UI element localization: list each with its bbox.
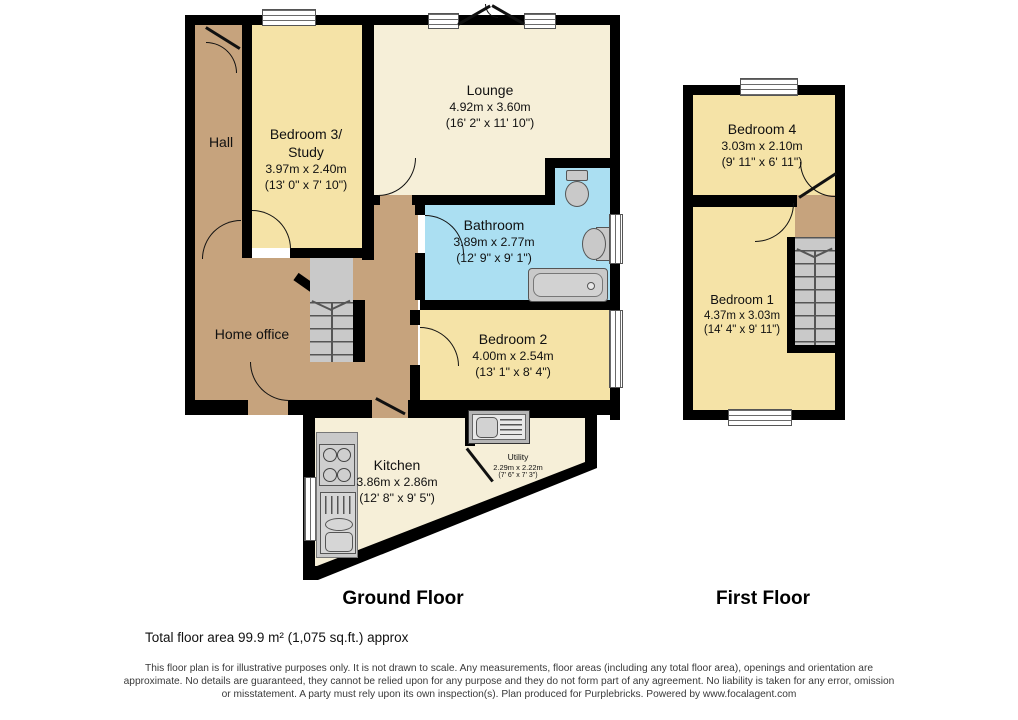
- window-bedroom4: [740, 78, 798, 96]
- utility-label: Utility 2.29m x 2.22m (7' 6" x 7' 3"): [493, 452, 543, 481]
- wall: [290, 248, 362, 258]
- room-dims-metric: 4.92m x 3.60m: [446, 100, 534, 116]
- window-bedroom1: [728, 409, 792, 426]
- window-bathroom: [609, 214, 623, 264]
- wall: [835, 85, 845, 420]
- room-name: Bedroom 3/: [265, 126, 347, 144]
- room-dims-imperial: (14' 4" x 9' 11"): [704, 323, 780, 338]
- bathroom-label: Bathroom 3.89m x 2.77m (12' 9" x 9' 1"): [453, 217, 534, 266]
- window-lounge-right: [524, 13, 556, 29]
- bedroom1-label: Bedroom 1 4.37m x 3.03m (14' 4" x 9' 11"…: [704, 292, 780, 338]
- floorplan-image: Hall Bedroom 3/ Study 3.97m x 2.40m (13'…: [0, 0, 1018, 720]
- hob-icon: [319, 444, 355, 486]
- window-bedroom2: [609, 310, 623, 388]
- room-dims-imperial: (16' 2" x 11' 10"): [446, 116, 534, 132]
- toilet-icon: [565, 170, 589, 208]
- wall: [374, 195, 380, 205]
- room-dims-imperial: (12' 9" x 9' 1"): [453, 251, 534, 267]
- room-dims-metric: 3.97m x 2.40m: [265, 162, 347, 178]
- wall: [362, 15, 374, 260]
- disclaimer-line1: This floor plan is for illustrative purp…: [0, 663, 1018, 674]
- wall: [185, 15, 195, 415]
- room-name-line2: Study: [265, 144, 347, 162]
- room-name: Bedroom 2: [472, 331, 553, 349]
- stairs-first-centerline: [814, 250, 816, 345]
- room-name: Utility: [493, 452, 543, 463]
- wall: [683, 85, 693, 420]
- wall: [410, 310, 420, 325]
- bathtub-icon: [528, 268, 608, 302]
- room-dims-metric: 4.00m x 2.54m: [472, 349, 553, 365]
- room-name: Home office: [215, 326, 289, 344]
- room-dims-imperial: (12' 8" x 9' 5"): [356, 491, 437, 507]
- utility-sink-icon: [468, 410, 530, 444]
- disclaimer-line3: or misstatement. A party must rely upon …: [0, 689, 1018, 700]
- room-dims-imperial: (7' 6" x 7' 3"): [493, 472, 543, 481]
- kitchen-sink-icon: [320, 492, 356, 554]
- room-name: Lounge: [446, 82, 534, 100]
- kitchen-doorway: [372, 400, 408, 418]
- wall: [545, 158, 555, 205]
- room-name: Bedroom 4: [721, 121, 802, 139]
- wall: [185, 400, 248, 415]
- room-dims-metric: 3.03m x 2.10m: [721, 139, 802, 155]
- room-dims-metric: 2.29m x 2.22m: [493, 463, 543, 473]
- wall: [410, 365, 420, 400]
- room-name: Bedroom 1: [704, 292, 780, 309]
- window-lounge-left: [428, 13, 459, 29]
- room-dims-metric: 3.89m x 2.77m: [453, 235, 534, 251]
- stairs-ground-landing: [310, 258, 353, 302]
- wall: [412, 195, 552, 205]
- bedroom2-label: Bedroom 2 4.00m x 2.54m (13' 1" x 8' 4"): [472, 331, 553, 380]
- wall: [415, 205, 425, 215]
- room-dims-imperial: (13' 0" x 7' 10"): [265, 178, 347, 194]
- wall: [787, 237, 795, 348]
- wall: [242, 15, 252, 258]
- room-name: Kitchen: [356, 457, 437, 475]
- bedroom3-label: Bedroom 3/ Study 3.97m x 2.40m (13' 0" x…: [265, 126, 347, 193]
- lounge-label: Lounge 4.92m x 3.60m (16' 2" x 11' 10"): [446, 82, 534, 131]
- window-bedroom3: [262, 9, 316, 26]
- room-name: Bathroom: [453, 217, 534, 235]
- room-dims-metric: 3.86m x 2.86m: [356, 475, 437, 491]
- ground-floor-title: Ground Floor: [342, 588, 463, 610]
- wall: [353, 300, 365, 362]
- wall: [415, 253, 425, 300]
- kitchen-label: Kitchen 3.86m x 2.86m (12' 8" x 9' 5"): [356, 457, 437, 506]
- wall: [787, 345, 835, 353]
- room-dims-imperial: (9' 11" x 6' 11"): [721, 155, 802, 171]
- first-floor-title: First Floor: [716, 588, 810, 610]
- disclaimer-line2: approximate. No details are guaranteed, …: [0, 676, 1018, 687]
- first-floor-landing: [795, 195, 835, 237]
- total-area-text: Total floor area 99.9 m² (1,075 sq.ft.) …: [145, 630, 408, 645]
- home-office-label: Home office: [215, 326, 289, 344]
- room-name: Hall: [209, 134, 233, 152]
- room-dims-imperial: (13' 1" x 8' 4"): [472, 365, 553, 381]
- room-dims-metric: 4.37m x 3.03m: [704, 309, 780, 324]
- basin-icon: [582, 226, 610, 262]
- bedroom4-label: Bedroom 4 3.03m x 2.10m (9' 11" x 6' 11"…: [721, 121, 802, 170]
- hall-label: Hall: [209, 134, 233, 152]
